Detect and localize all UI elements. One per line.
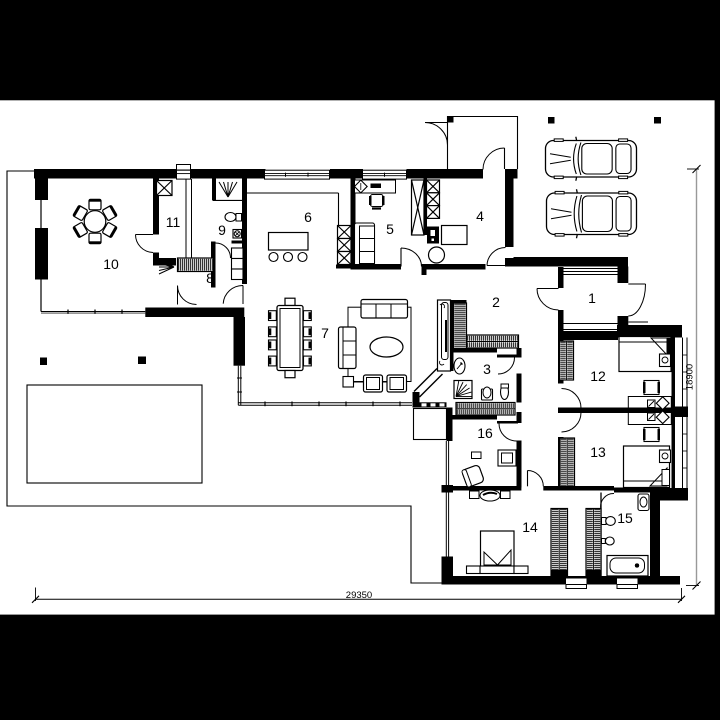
svg-text:8: 8 [206, 270, 214, 286]
svg-text:15: 15 [617, 510, 633, 526]
svg-text:14: 14 [522, 519, 538, 535]
svg-text:2: 2 [492, 294, 500, 310]
svg-text:29350: 29350 [346, 590, 372, 601]
svg-text:1: 1 [588, 290, 596, 306]
svg-text:6: 6 [304, 209, 312, 225]
svg-text:9: 9 [218, 222, 226, 238]
svg-text:18900: 18900 [685, 364, 696, 390]
svg-text:7: 7 [321, 325, 329, 341]
svg-text:13: 13 [590, 444, 606, 460]
svg-text:10: 10 [103, 256, 119, 272]
svg-text:4: 4 [476, 208, 484, 224]
svg-text:12: 12 [590, 368, 606, 384]
svg-text:16: 16 [477, 425, 493, 441]
svg-text:5: 5 [386, 221, 394, 237]
svg-text:3: 3 [483, 361, 491, 377]
svg-text:11: 11 [166, 214, 181, 230]
